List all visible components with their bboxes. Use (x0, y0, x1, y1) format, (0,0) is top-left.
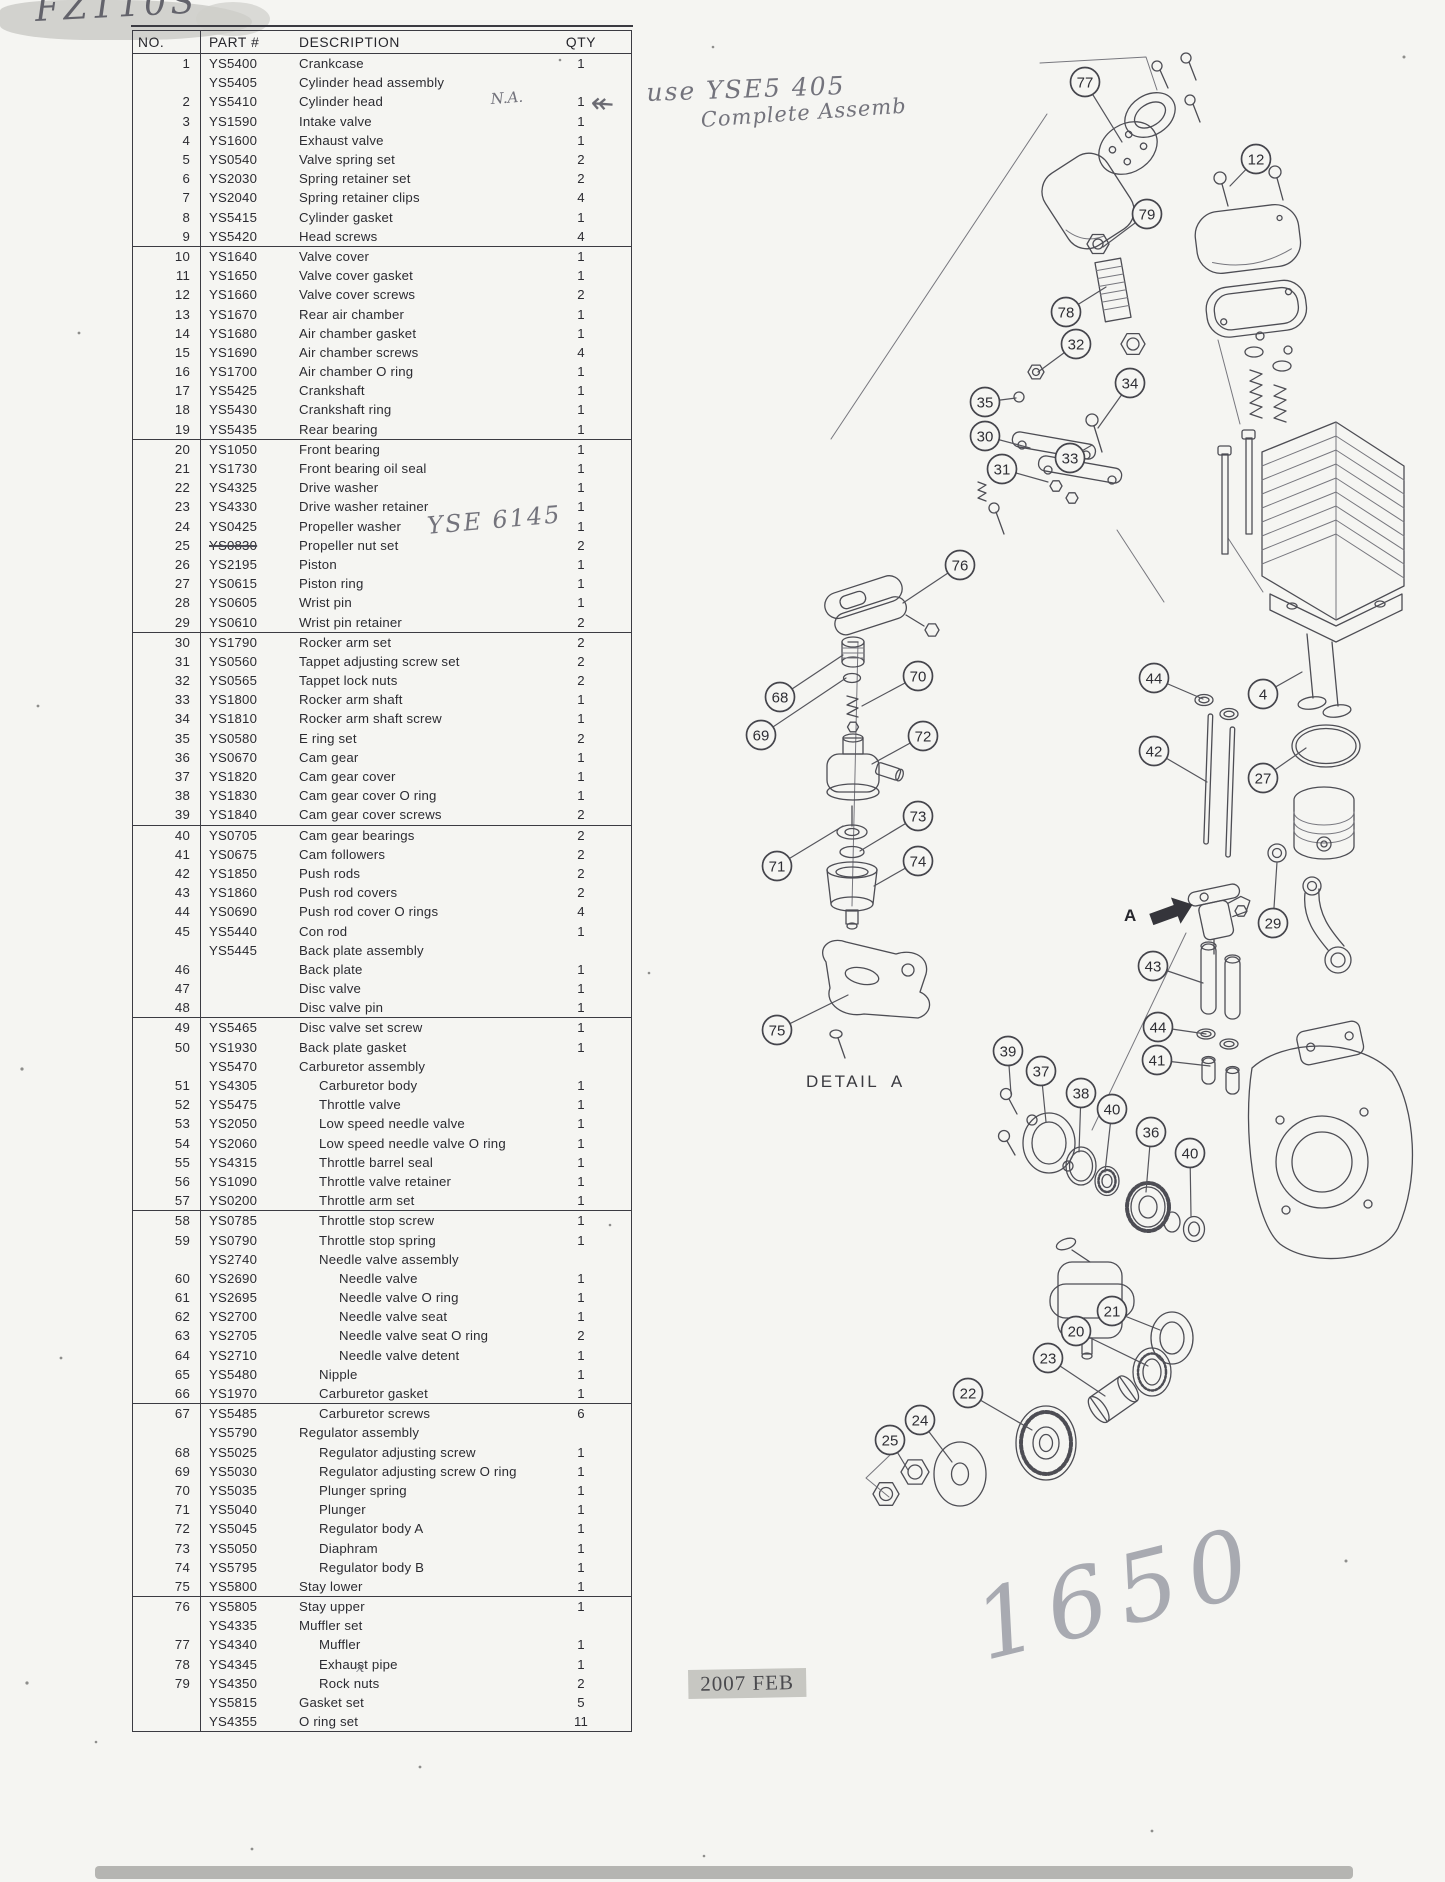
table-row: 16YS1700Air chamber O ring1 (133, 362, 631, 381)
handwritten-use-note-2: Complete Assemb (700, 94, 907, 132)
handwritten-use-note: use YSE5 405 (646, 71, 846, 107)
svg-text:73: 73 (910, 809, 927, 826)
callout-12 (1242, 145, 1271, 174)
table-row: 53YS2050Low speed needle valve1 (133, 1114, 631, 1133)
table-row: YS4335Muffler set (133, 1616, 631, 1635)
callout-43 (1139, 952, 1168, 981)
table-row: 2YS5410Cylinder head1 (133, 92, 631, 111)
table-row: 35YS0580E ring set2 (133, 729, 631, 748)
svg-text:79: 79 (1139, 207, 1156, 224)
table-row: 52YS5475Throttle valve1 (133, 1095, 631, 1114)
svg-text:39: 39 (1000, 1044, 1017, 1061)
callout-77 (1071, 68, 1100, 97)
valve-cover-parts (1192, 166, 1309, 340)
callout-24 (906, 1406, 935, 1435)
table-row: 22YS4325Drive washer1 (133, 478, 631, 497)
table-row: 13YS1670Rear air chamber1 (133, 304, 631, 323)
svg-text:20: 20 (1068, 1324, 1085, 1341)
date-stamp: 2007 FEB (688, 1668, 806, 1699)
column-header-description: DESCRIPTION (295, 35, 557, 50)
svg-text:22: 22 (960, 1386, 977, 1403)
handwritten-price: 1650 (964, 1506, 1272, 1683)
svg-text:37: 37 (1033, 1064, 1050, 1081)
callout-41 (1143, 1046, 1172, 1075)
table-row: 72YS5045Regulator body A1 (133, 1519, 631, 1538)
callout-70 (904, 662, 933, 691)
table-row: 28YS0605Wrist pin1 (133, 593, 631, 612)
valve-spring-parts (1245, 332, 1292, 422)
table-row: 8YS5415Cylinder gasket1 (133, 208, 631, 227)
column-header-no: NO. (133, 31, 201, 53)
table-row: 42YS1850Push rods2 (133, 864, 631, 883)
table-row: 19YS5435Rear bearing1 (133, 420, 631, 439)
callout-20 (1062, 1317, 1091, 1346)
table-row: 20YS1050Front bearing1 (133, 439, 631, 459)
svg-text:21: 21 (1104, 1304, 1121, 1321)
svg-text:40: 40 (1104, 1102, 1121, 1119)
crankshaft-parts (866, 1312, 1193, 1506)
table-row: 49YS5465Disc valve set screw1 (133, 1017, 631, 1037)
table-row: 44YS0690Push rod cover O rings4 (133, 902, 631, 921)
callout-32 (1062, 330, 1091, 359)
svg-text:27: 27 (1255, 771, 1272, 788)
table-row: 5YS0540Valve spring set2 (133, 150, 631, 169)
svg-text:76: 76 (952, 558, 969, 575)
callout-33 (1056, 444, 1085, 473)
pushrod-cover-parts (1197, 942, 1240, 1094)
table-row: 41YS0675Cam followers2 (133, 845, 631, 864)
svg-text:23: 23 (1040, 1351, 1057, 1368)
regulator-parts (821, 572, 939, 1058)
callout-37 (1027, 1057, 1056, 1086)
table-row: 57YS0200Throttle arm set1 (133, 1191, 631, 1210)
table-row: 7YS2040Spring retainer clips4 (133, 188, 631, 207)
cylinder-parts (1218, 422, 1404, 642)
svg-text:25: 25 (882, 1433, 899, 1450)
callout-44 (1144, 1013, 1173, 1042)
table-row: 14YS1680Air chamber gasket1 (133, 324, 631, 343)
table-row: 48Disc valve pin1 (133, 998, 631, 1017)
table-row: 18YS5430Crankshaft ring1 (133, 400, 631, 419)
table-row: 32YS0565Tappet lock nuts2 (133, 671, 631, 690)
table-row: 47Disc valve1 (133, 979, 631, 998)
table-row: 73YS5050Diaphram1 (133, 1538, 631, 1557)
table-row: 64YS2710Needle valve detent1 (133, 1346, 631, 1365)
svg-text:31: 31 (994, 462, 1011, 479)
table-row: 34YS1810Rocker arm shaft screw1 (133, 709, 631, 728)
callout-75 (763, 1016, 792, 1045)
callout-76 (946, 551, 975, 580)
table-row: 15YS1690Air chamber screws4 (133, 343, 631, 362)
callout-30 (971, 422, 1000, 451)
svg-text:75: 75 (769, 1023, 786, 1040)
callout-42 (1140, 737, 1169, 766)
table-row: 36YS0670Cam gear1 (133, 748, 631, 767)
table-row: 79YS4350Rock nuts2 (133, 1674, 631, 1693)
valve-pushrod-parts (1195, 634, 1352, 857)
table-row: 38YS1830Cam gear cover O ring1 (133, 786, 631, 805)
table-row: 70YS5035Plunger spring1 (133, 1481, 631, 1500)
table-row: 76YS5805Stay upper1 (133, 1596, 631, 1616)
table-row: 26YS2195Piston1 (133, 555, 631, 574)
table-row: YS5790Regulator assembly (133, 1423, 631, 1442)
svg-text:32: 32 (1068, 337, 1085, 354)
detail-arrow-label: A (1124, 906, 1136, 926)
column-header-part: PART # (201, 35, 295, 50)
table-header: NO. PART # DESCRIPTION QTY (133, 31, 631, 54)
table-row: 46Back plate1 (133, 960, 631, 979)
crankcase-parts (1050, 1020, 1412, 1359)
svg-text:41: 41 (1149, 1053, 1166, 1070)
callout-40 (1176, 1139, 1205, 1168)
table-row: 77YS4340Muffler1 (133, 1635, 631, 1654)
svg-text:42: 42 (1146, 744, 1163, 761)
table-row: 67YS5485Carburetor screws6 (133, 1403, 631, 1423)
callout-35 (971, 388, 1000, 417)
table-row: 71YS5040Plunger1 (133, 1500, 631, 1519)
table-row: 40YS0705Cam gear bearings2 (133, 825, 631, 845)
svg-text:72: 72 (915, 729, 932, 746)
callout-38 (1067, 1079, 1096, 1108)
callout-39 (994, 1037, 1023, 1066)
table-row: 31YS0560Tappet adjusting screw set2 (133, 652, 631, 671)
callout-74 (904, 847, 933, 876)
table-row: 45YS5440Con rod1 (133, 921, 631, 940)
parts-table-body: 1YS5400Crankcase1YS5405Cylinder head ass… (133, 54, 631, 1731)
table-row: 51YS4305Carburetor body1 (133, 1076, 631, 1095)
table-row: 29YS0610Wrist pin retainer2 (133, 612, 631, 631)
piston-parts (1268, 725, 1360, 973)
table-row: 9YS5420Head screws4 (133, 227, 631, 246)
table-row: 63YS2705Needle valve seat O ring2 (133, 1326, 631, 1345)
svg-text:40: 40 (1182, 1146, 1199, 1163)
table-row: YS5445Back plate assembly (133, 941, 631, 960)
callout-69 (747, 721, 776, 750)
table-row: 54YS2060Low speed needle valve O ring1 (133, 1134, 631, 1153)
parts-table: NO. PART # DESCRIPTION QTY 1YS5400Crankc… (132, 30, 632, 1732)
table-row: 12YS1660Valve cover screws2 (133, 285, 631, 304)
callout-21 (1098, 1297, 1127, 1326)
svg-text:35: 35 (977, 395, 994, 412)
svg-text:77: 77 (1077, 75, 1094, 92)
callout-25 (876, 1426, 905, 1455)
table-row: 74YS5795Regulator body B1 (133, 1558, 631, 1577)
svg-text:29: 29 (1265, 916, 1282, 933)
table-row: YS5470Carburetor assembly (133, 1057, 631, 1076)
scan-band-bottom (95, 1866, 1353, 1879)
svg-text:69: 69 (753, 728, 770, 745)
rocker-arm-parts (978, 365, 1123, 534)
column-header-qty: QTY (557, 35, 605, 50)
table-row: YS5815Gasket set5 (133, 1693, 631, 1712)
callout-79 (1133, 200, 1162, 229)
svg-text:74: 74 (910, 854, 927, 871)
svg-text:68: 68 (772, 690, 789, 707)
svg-text:43: 43 (1145, 959, 1162, 976)
callout-44 (1140, 664, 1169, 693)
svg-text:30: 30 (977, 429, 994, 446)
table-row: 10YS1640Valve cover1 (133, 246, 631, 266)
svg-text:38: 38 (1073, 1086, 1090, 1103)
table-row: 30YS1790Rocker arm set2 (133, 632, 631, 652)
svg-text:44: 44 (1146, 671, 1163, 688)
svg-text:44: 44 (1150, 1020, 1167, 1037)
table-row: 3YS1590Intake valve1 (133, 112, 631, 131)
svg-text:34: 34 (1122, 376, 1139, 393)
table-row: 58YS0785Throttle stop screw1 (133, 1210, 631, 1230)
svg-text:24: 24 (912, 1413, 929, 1430)
table-row: 33YS1800Rocker arm shaft1 (133, 690, 631, 709)
callout-68 (766, 683, 795, 712)
table-row: 69YS5030Regulator adjusting screw O ring… (133, 1462, 631, 1481)
callout-circles: 7712797832343530313376686970727173747544… (747, 68, 1288, 1455)
table-row: 25YS0830Propeller nut set2 (133, 536, 631, 555)
table-row: 4YS1600Exhaust valve1 (133, 131, 631, 150)
cam-gear-parts (999, 1089, 1205, 1242)
svg-text:12: 12 (1248, 152, 1265, 169)
table-row: 11YS1650Valve cover gasket1 (133, 266, 631, 285)
muffler-parts (1034, 53, 1200, 354)
callout-73 (904, 802, 933, 831)
table-row: 6YS2030Spring retainer set2 (133, 169, 631, 188)
callout-29 (1259, 909, 1288, 938)
detail-a-label: DETAIL A (806, 1072, 905, 1092)
table-row: YS2740Needle valve assembly (133, 1250, 631, 1269)
svg-text:78: 78 (1058, 305, 1075, 322)
table-row: 65YS5480Nipple1 (133, 1365, 631, 1384)
callout-22 (954, 1379, 983, 1408)
table-row: YS5405Cylinder head assembly (133, 73, 631, 92)
table-row: 66YS1970Carburetor gasket1 (133, 1384, 631, 1403)
table-row: YS4355O ring set11 (133, 1712, 631, 1731)
callout-40 (1098, 1095, 1127, 1124)
table-row: 62YS2700Needle valve seat1 (133, 1307, 631, 1326)
callout-72 (909, 722, 938, 751)
callout-27 (1249, 764, 1278, 793)
table-row: 61YS2695Needle valve O ring1 (133, 1288, 631, 1307)
callout-71 (763, 852, 792, 881)
table-row: 23YS4330Drive washer retainer1 (133, 497, 631, 516)
table-row: 60YS2690Needle valve1 (133, 1269, 631, 1288)
callout-4 (1249, 680, 1278, 709)
table-row: 39YS1840Cam gear cover screws2 (133, 805, 631, 824)
svg-text:33: 33 (1062, 451, 1079, 468)
rocker-detail-parts (1147, 881, 1257, 954)
table-row: 21YS1730Front bearing oil seal1 (133, 459, 631, 478)
svg-text:36: 36 (1143, 1125, 1160, 1142)
table-row: 50YS1930Back plate gasket1 (133, 1038, 631, 1057)
table-row: 59YS0790Throttle stop spring1 (133, 1230, 631, 1249)
svg-text:4: 4 (1259, 687, 1267, 704)
table-row: 68YS5025Regulator adjusting screw1 (133, 1443, 631, 1462)
callout-78 (1052, 298, 1081, 327)
callout-34 (1116, 369, 1145, 398)
table-row: 24YS0425Propeller washer1 (133, 517, 631, 536)
svg-text:71: 71 (769, 859, 786, 876)
scanned-parts-list-page: 7712797832343530313376686970727173747544… (0, 0, 1445, 1882)
table-row: 56YS1090Throttle valve retainer1 (133, 1172, 631, 1191)
callout-31 (988, 455, 1017, 484)
svg-text:70: 70 (910, 669, 927, 686)
table-row: 17YS5425Crankshaft1 (133, 381, 631, 400)
table-row: 55YS4315Throttle barrel seal1 (133, 1153, 631, 1172)
table-row: 27YS0615Piston ring1 (133, 574, 631, 593)
callout-leader-lines (761, 82, 1306, 1470)
table-row: 1YS5400Crankcase1 (133, 54, 631, 73)
table-row: 78YS4345Exhaust pipe1 (133, 1655, 631, 1674)
table-row: 37YS1820Cam gear cover1 (133, 767, 631, 786)
callout-23 (1034, 1344, 1063, 1373)
callout-36 (1137, 1118, 1166, 1147)
table-row: 75YS5800Stay lower1 (133, 1577, 631, 1596)
table-row: 43YS1860Push rod covers2 (133, 883, 631, 902)
